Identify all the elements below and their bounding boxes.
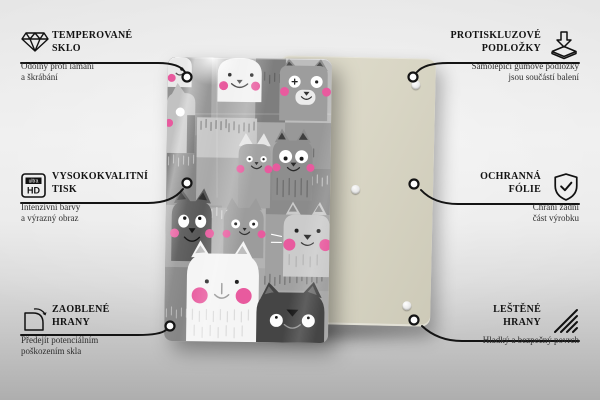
feature-desc-line: Odolný proti lámání: [21, 61, 132, 72]
polished-edge-icon: [551, 306, 579, 334]
feature-title-line: PROTISKLUZOVÉ: [451, 30, 542, 43]
cat-pattern-image: [164, 57, 332, 343]
feature-title-line: PODLOŽKY: [451, 43, 542, 56]
feature-title-line: FÓLIE: [480, 184, 541, 197]
feature-title-line: OCHRANNÁ: [480, 171, 541, 184]
feature-desc-line: Chrání zadní: [480, 202, 579, 213]
feature-anti-slip-pads: PROTISKLUZOVÉ PODLOŽKY Samolepicí gumové…: [451, 30, 580, 82]
feature-desc-line: poškozením skla: [21, 346, 110, 357]
ultra-hd-icon: ultra HD: [21, 173, 46, 198]
anti-slip-pad: [351, 185, 360, 194]
svg-text:ultra: ultra: [29, 179, 39, 185]
feature-desc-line: Samolepicí gumové podložky: [451, 61, 580, 72]
feature-title-line: LEŠTĚNÉ: [483, 304, 541, 317]
feature-desc-line: jsou součástí balení: [451, 72, 580, 83]
feature-polished-edges: LEŠTĚNÉ HRANY Hladký a bezpečný povrch: [483, 304, 579, 346]
svg-text:HD: HD: [27, 186, 40, 196]
product-infographic: TEMPEROVANÉ SKLO Odolný proti lámání a š…: [0, 0, 600, 400]
anti-slip-pad-icon: [548, 30, 579, 61]
shield-check-icon: [553, 173, 579, 201]
feature-rounded-edges: ZAOBLENÉ HRANY Předejít potenciálním poš…: [21, 304, 110, 356]
feature-desc-line: a škrábání: [21, 72, 132, 83]
feature-title-line: HRANY: [483, 317, 541, 330]
feature-title-line: VYSOKOKVALITNÍ: [52, 171, 148, 184]
feature-title-line: TEMPEROVANÉ: [52, 30, 132, 43]
feature-protective-foil: OCHRANNÁ FÓLIE Chrání zadní část výrobku: [480, 171, 579, 223]
feature-desc-line: Předejít potenciálním: [21, 335, 110, 346]
anti-slip-pad: [402, 301, 411, 310]
feature-hq-print: ultra HD VYSOKOKVALITNÍ TISK Intenzivní …: [21, 171, 148, 223]
feature-desc-line: Hladký a bezpečný povrch: [483, 335, 579, 346]
feature-desc-line: část výrobku: [480, 213, 579, 224]
rounded-corner-icon: [21, 306, 48, 333]
feature-desc-line: a výrazný obraz: [21, 213, 148, 224]
diamond-icon: [21, 32, 49, 52]
feature-title-line: SKLO: [52, 43, 132, 56]
feature-title-line: HRANY: [52, 317, 110, 330]
feature-title-line: TISK: [52, 184, 148, 197]
feature-title-line: ZAOBLENÉ: [52, 304, 110, 317]
anti-slip-pad: [411, 80, 420, 89]
board-front-panel: [164, 57, 332, 343]
feature-tempered-glass: TEMPEROVANÉ SKLO Odolný proti lámání a š…: [21, 30, 132, 82]
feature-desc-line: Intenzivní barvy: [21, 202, 148, 213]
